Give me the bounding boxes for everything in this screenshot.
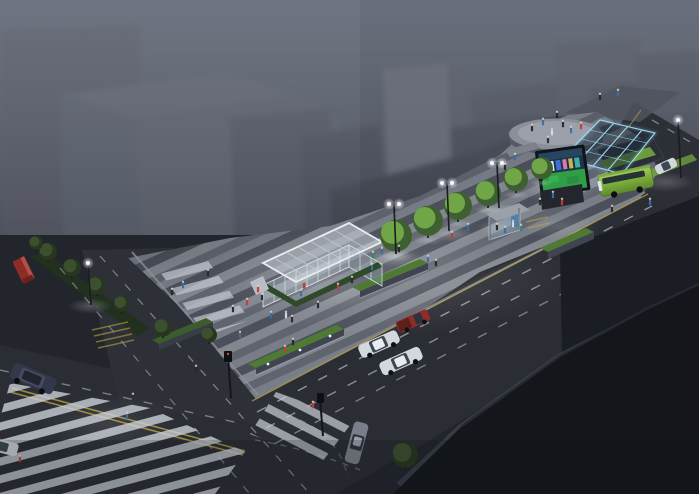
person bbox=[451, 233, 453, 238]
person-head bbox=[171, 288, 173, 290]
person-head bbox=[531, 124, 533, 126]
lamp-light bbox=[490, 161, 494, 165]
person-head bbox=[126, 412, 128, 414]
person bbox=[611, 207, 613, 212]
person-head bbox=[504, 163, 506, 165]
person-head bbox=[292, 338, 294, 340]
person bbox=[556, 113, 558, 118]
person bbox=[496, 225, 498, 230]
person-head bbox=[195, 365, 197, 367]
tree-canopy-highlight bbox=[381, 221, 404, 244]
person bbox=[284, 347, 286, 352]
tree-canopy-highlight bbox=[201, 327, 213, 339]
person bbox=[371, 265, 373, 270]
person bbox=[337, 285, 339, 290]
tree-canopy-highlight bbox=[476, 181, 495, 200]
person bbox=[542, 120, 544, 125]
person bbox=[195, 367, 197, 372]
person bbox=[551, 130, 553, 135]
person-head bbox=[599, 93, 601, 95]
person bbox=[561, 200, 563, 205]
person bbox=[171, 290, 173, 295]
person-head bbox=[539, 198, 541, 200]
person-head bbox=[285, 311, 287, 313]
person-head bbox=[312, 401, 314, 403]
person bbox=[435, 261, 437, 266]
tree-canopy-highlight bbox=[29, 237, 39, 247]
person bbox=[312, 403, 314, 408]
person bbox=[514, 155, 516, 160]
person-head bbox=[467, 223, 469, 225]
person-head bbox=[261, 293, 263, 295]
person bbox=[649, 200, 651, 205]
person bbox=[291, 317, 293, 322]
person bbox=[126, 414, 128, 419]
person-head bbox=[239, 331, 241, 333]
fog-layer-left bbox=[0, 0, 360, 260]
person bbox=[617, 91, 619, 96]
person bbox=[246, 300, 248, 305]
person bbox=[562, 122, 564, 127]
person bbox=[270, 313, 272, 318]
person bbox=[504, 228, 506, 233]
lamp-light bbox=[397, 202, 401, 206]
person bbox=[300, 291, 302, 296]
tree-canopy-highlight bbox=[505, 168, 522, 185]
architectural-rendering bbox=[0, 0, 699, 494]
person bbox=[381, 249, 383, 254]
person bbox=[504, 165, 506, 170]
vignette bbox=[0, 440, 699, 494]
person-head bbox=[337, 283, 339, 285]
person bbox=[580, 124, 582, 129]
person bbox=[570, 128, 572, 133]
person-head bbox=[291, 315, 293, 317]
person bbox=[552, 193, 554, 198]
person bbox=[520, 226, 522, 231]
person bbox=[292, 340, 294, 345]
person bbox=[317, 303, 319, 308]
person-head bbox=[649, 198, 651, 200]
lamp-light bbox=[440, 181, 444, 185]
person-head bbox=[270, 311, 272, 313]
person-head bbox=[542, 118, 544, 120]
tree-canopy-highlight bbox=[64, 259, 77, 272]
person-head bbox=[514, 153, 516, 155]
person-head bbox=[520, 224, 522, 226]
person-head bbox=[246, 298, 248, 300]
person-head bbox=[561, 198, 563, 200]
person bbox=[239, 333, 241, 338]
person-head bbox=[372, 251, 374, 253]
person-head bbox=[427, 255, 429, 257]
person bbox=[285, 313, 287, 318]
person-head bbox=[496, 223, 498, 225]
person-head bbox=[398, 245, 400, 247]
tree-canopy-highlight bbox=[414, 207, 436, 229]
tree-canopy-highlight bbox=[155, 319, 168, 332]
person-head bbox=[504, 226, 506, 228]
person bbox=[427, 257, 429, 262]
person-head bbox=[317, 301, 319, 303]
lamp-light bbox=[387, 202, 391, 206]
lamp-light bbox=[86, 261, 90, 265]
rendering-canvas bbox=[0, 0, 699, 494]
person-head bbox=[435, 259, 437, 261]
person bbox=[132, 395, 134, 400]
person-head bbox=[570, 126, 572, 128]
person-head bbox=[611, 205, 613, 207]
person bbox=[512, 222, 514, 227]
lamp-light bbox=[450, 181, 454, 185]
person-head bbox=[580, 122, 582, 124]
person bbox=[531, 126, 533, 131]
person-head bbox=[132, 393, 134, 395]
person-head bbox=[556, 111, 558, 113]
person bbox=[207, 271, 209, 276]
person bbox=[351, 278, 353, 283]
person-head bbox=[552, 191, 554, 193]
person-head bbox=[182, 281, 184, 283]
person bbox=[547, 138, 549, 143]
person-head bbox=[512, 220, 514, 222]
lamp-light bbox=[676, 118, 680, 122]
person-head bbox=[207, 269, 209, 271]
person-head bbox=[562, 120, 564, 122]
person-head bbox=[351, 276, 353, 278]
tree-canopy-highlight bbox=[114, 296, 126, 308]
person bbox=[182, 283, 184, 288]
person-head bbox=[551, 128, 553, 130]
person bbox=[232, 307, 234, 312]
person bbox=[467, 225, 469, 230]
person-head bbox=[451, 231, 453, 233]
tree-canopy-highlight bbox=[532, 158, 548, 174]
person bbox=[539, 200, 541, 205]
person-head bbox=[617, 89, 619, 91]
person bbox=[257, 287, 259, 292]
person bbox=[261, 295, 263, 300]
person bbox=[372, 253, 374, 258]
person-head bbox=[284, 345, 286, 347]
person bbox=[398, 247, 400, 252]
person-head bbox=[371, 263, 373, 265]
person-head bbox=[547, 136, 549, 138]
person-head bbox=[300, 289, 302, 291]
person-head bbox=[257, 285, 259, 287]
person-head bbox=[381, 247, 383, 249]
person-head bbox=[232, 305, 234, 307]
lamp-light bbox=[500, 161, 504, 165]
person bbox=[599, 95, 601, 100]
